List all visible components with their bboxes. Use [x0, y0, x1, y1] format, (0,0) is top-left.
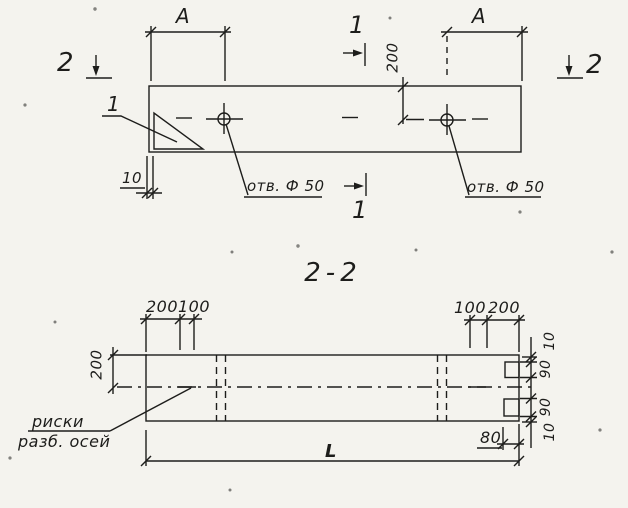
- section-1-bottom-label: 1: [352, 198, 368, 222]
- section-dim-100-top-right-label: 100: [454, 300, 486, 316]
- plan-hole-right: [429, 104, 466, 135]
- dim-a-left-label: A: [165, 6, 201, 26]
- detail-1-label: 1: [107, 94, 120, 114]
- section-mark-1-bottom: [344, 173, 366, 196]
- section-dim-200-top-right-label: 200: [487, 300, 521, 316]
- plan-detail-leader: [102, 116, 177, 142]
- section-end-notches: [504, 362, 519, 416]
- section-dim-100-top-left-label: 100: [178, 299, 210, 315]
- section-2-right-label: 2: [586, 52, 603, 78]
- section-dim-right-chain: [520, 337, 537, 448]
- plan-centerline-dashes: [342, 118, 488, 120]
- plan-hole-left: [176, 103, 243, 134]
- section-beam-outline: [146, 355, 519, 421]
- plan-dim-200: [398, 77, 408, 125]
- section-hidden-holes: [217, 355, 447, 421]
- plan-beam-outline: [149, 86, 521, 152]
- section-dim-left-200-label: 200: [90, 343, 105, 387]
- hole-label-right: отв. Ф 50: [467, 180, 545, 195]
- section-2-left-label: 2: [57, 50, 74, 76]
- axis-note-line2: разб. осей: [18, 434, 110, 450]
- axis-note-line1: риски: [32, 414, 84, 430]
- section-dim-top-left: [140, 314, 202, 352]
- plan-dim-10-label: 10: [122, 171, 142, 186]
- section-dim-10-top-label: 10: [543, 326, 557, 356]
- plan-dim-a-right: [441, 26, 528, 81]
- section-dim-length-label: L: [315, 443, 347, 461]
- section-1-top-label: 1: [349, 13, 365, 37]
- section-mark-2-right: [557, 55, 583, 78]
- dim-a-right-label: A: [461, 6, 497, 26]
- drawing-canvas: A A 2 2 1 1 1 200 10 отв. Ф 50 отв. Ф 50…: [0, 0, 628, 508]
- section-mark-2-left: [86, 55, 112, 78]
- hole-label-left: отв. Ф 50: [247, 179, 325, 194]
- section-mark-1-top: [343, 43, 365, 66]
- section-dim-90-top-label: 90: [539, 354, 553, 384]
- plan-dim-a-left: [145, 26, 231, 81]
- section-dim-10-bottom-label: 10: [543, 417, 557, 447]
- plan-dim-200-label: 200: [386, 36, 401, 80]
- section-dim-80-label: 80: [480, 430, 501, 446]
- section-dim-200-top-left-label: 200: [145, 299, 179, 315]
- section-title: 2-2: [298, 260, 368, 286]
- section-dim-top-right: [464, 315, 525, 352]
